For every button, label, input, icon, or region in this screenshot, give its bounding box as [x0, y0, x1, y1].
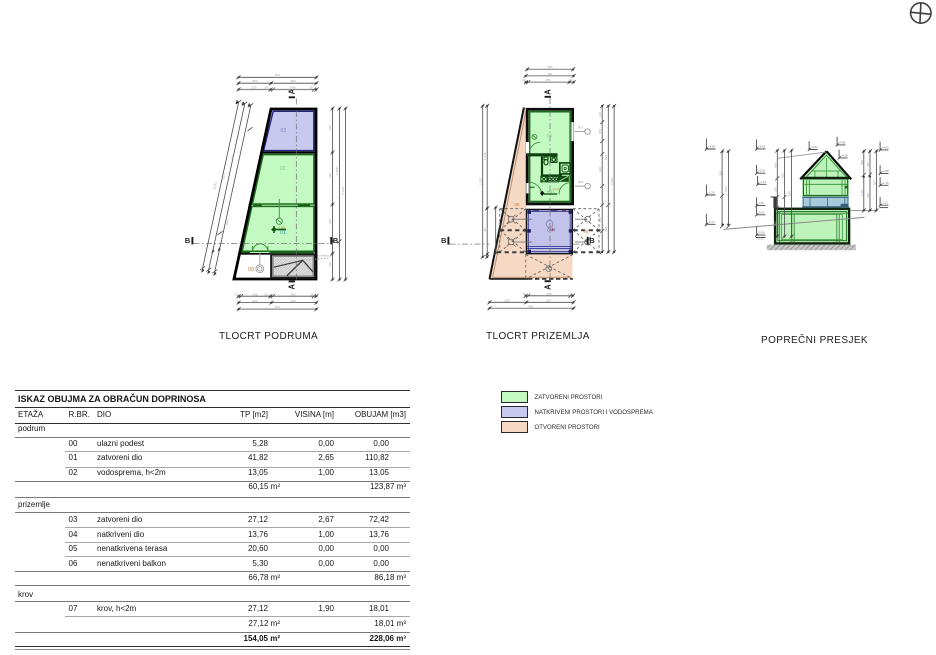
svg-text:24: 24 [234, 292, 238, 296]
svg-text:Ø75: Ø75 [578, 180, 584, 184]
svg-text:-1,50: -1,50 [708, 191, 715, 195]
svg-text:2,78: 2,78 [860, 190, 864, 196]
svg-text:260: 260 [598, 217, 602, 222]
svg-text:A: A [543, 284, 552, 290]
svg-text:607: 607 [275, 73, 280, 77]
svg-text:233: 233 [251, 85, 256, 89]
svg-text:-0,81: -0,81 [758, 201, 765, 205]
svg-text:860: 860 [788, 191, 792, 196]
svg-text:+4,85: +4,85 [839, 140, 847, 144]
svg-text:2247: 2247 [724, 185, 728, 192]
svg-text:A: A [287, 284, 296, 290]
svg-text:660: 660 [780, 173, 784, 178]
svg-text:607: 607 [275, 305, 280, 309]
svg-text:03: 03 [281, 128, 287, 134]
svg-text:01: 01 [280, 230, 286, 236]
svg-text:Ø75: Ø75 [578, 126, 584, 130]
svg-text:358: 358 [866, 162, 870, 167]
svg-text:+2,16: +2,16 [759, 180, 767, 184]
svg-text:14: 14 [264, 85, 268, 89]
svg-text:1,040: 1,040 [483, 152, 487, 160]
svg-text:+4,63: +4,63 [708, 145, 716, 149]
svg-text:364: 364 [290, 79, 295, 83]
svg-text:434: 434 [773, 163, 777, 168]
svg-text:140: 140 [328, 262, 332, 267]
svg-text:-3,25: -3,25 [757, 237, 764, 241]
svg-text:990: 990 [604, 155, 608, 160]
svg-text:-1,17: -1,17 [708, 220, 715, 224]
svg-text:295: 295 [866, 193, 870, 198]
svg-text:343: 343 [290, 299, 295, 303]
svg-text:162: 162 [598, 112, 602, 117]
svg-text:647: 647 [225, 219, 230, 225]
svg-text:1,08: 1,08 [279, 225, 285, 229]
svg-text:+2,65: +2,65 [758, 169, 766, 173]
svg-text:15: 15 [310, 292, 314, 296]
svg-text:05: 05 [514, 202, 520, 207]
svg-text:-0,91: -0,91 [758, 210, 765, 214]
svg-text:455: 455 [545, 78, 550, 82]
svg-text:±0,00: ±0,00 [553, 187, 560, 191]
svg-text:189: 189 [598, 129, 602, 134]
svg-text:597: 597 [872, 180, 876, 185]
svg-text:20: 20 [264, 292, 268, 296]
svg-text:1,565*: 1,565* [335, 165, 339, 175]
svg-text:B: B [185, 236, 191, 245]
svg-text:445: 445 [546, 292, 551, 296]
svg-text:235: 235 [328, 125, 332, 130]
svg-text:280: 280 [328, 173, 332, 178]
svg-text:1178,1: 1178,1 [212, 180, 218, 190]
svg-text:388: 388 [860, 160, 864, 165]
svg-text:444: 444 [230, 154, 235, 160]
svg-text:505: 505 [547, 65, 552, 69]
svg-text:1,565*: 1,565* [341, 185, 345, 195]
svg-text:-3,08: -3,08 [758, 231, 765, 235]
svg-text:1,507: 1,507 [610, 177, 614, 185]
svg-text:+4,63: +4,63 [811, 145, 819, 149]
svg-text:26: 26 [568, 292, 572, 296]
svg-text:320: 320 [598, 167, 602, 172]
svg-text:275: 275 [773, 187, 777, 192]
svg-text:482: 482 [528, 305, 533, 309]
svg-text:308: 308 [719, 171, 723, 176]
svg-text:+2,88: +2,88 [882, 169, 890, 173]
svg-text:345: 345 [290, 85, 295, 89]
svg-text:481: 481 [547, 72, 552, 76]
svg-text:06: 06 [584, 229, 589, 234]
svg-text:+4,63: +4,63 [758, 144, 766, 148]
svg-text:1,507: 1,507 [479, 177, 483, 185]
svg-text:15: 15 [309, 85, 313, 89]
svg-text:+4,08: +4,08 [841, 153, 849, 157]
svg-text:264: 264 [252, 299, 257, 303]
svg-text:253: 253 [252, 79, 257, 83]
svg-text:343: 343 [290, 292, 295, 296]
svg-text:1117: 1117 [221, 173, 226, 180]
svg-text:B: B [441, 236, 447, 245]
svg-text:507: 507 [546, 299, 551, 303]
svg-text:457: 457 [483, 227, 487, 232]
svg-text:02: 02 [280, 166, 286, 172]
svg-text:200: 200 [328, 219, 332, 224]
svg-text:00: 00 [248, 267, 254, 273]
svg-text:A: A [543, 89, 552, 95]
svg-text:B: B [589, 236, 595, 245]
svg-text:+4,63: +4,63 [882, 145, 890, 149]
svg-text:249: 249 [252, 292, 257, 296]
svg-text:298: 298 [773, 221, 777, 226]
svg-text:-1,01: -1,01 [882, 201, 889, 205]
svg-text:458: 458 [604, 227, 608, 232]
svg-text:265: 265 [504, 299, 509, 303]
svg-text:+2,16: +2,16 [882, 181, 890, 185]
